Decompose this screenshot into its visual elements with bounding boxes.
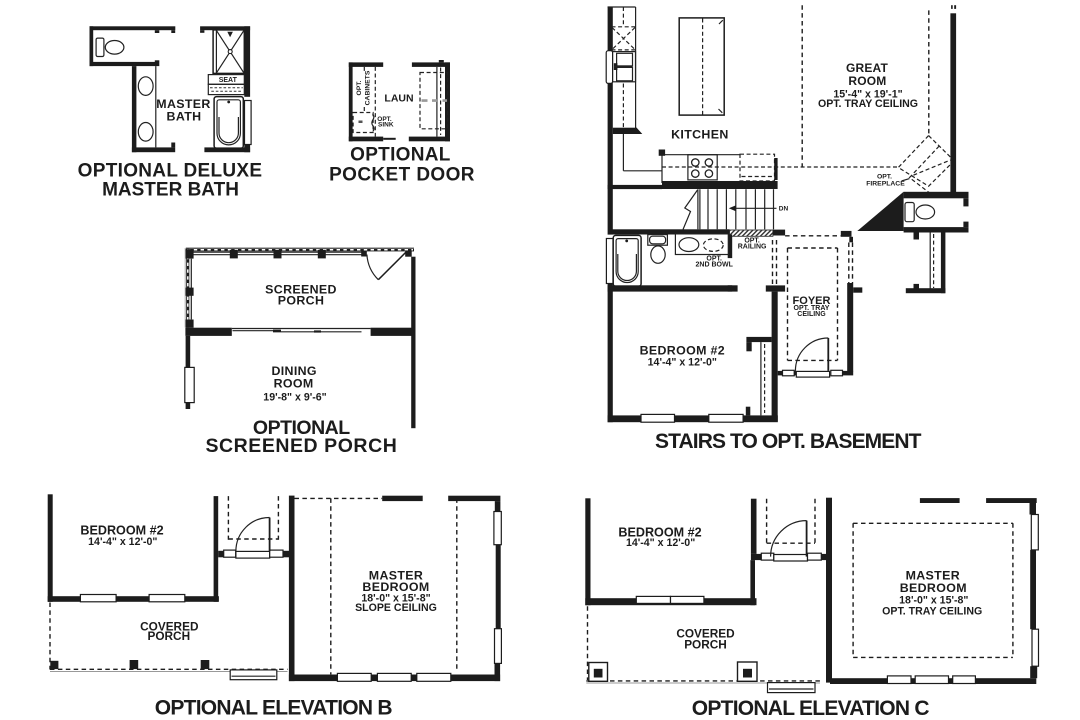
svg-text:RAILING: RAILING	[738, 244, 767, 251]
svg-text:DN: DN	[779, 206, 789, 213]
svg-text:FIREPLACE: FIREPLACE	[866, 181, 905, 188]
svg-text:ROOM: ROOM	[274, 376, 314, 390]
svg-text:OPTIONAL DELUXE: OPTIONAL DELUXE	[78, 160, 263, 181]
svg-text:OPTIONAL ELEVATION B: OPTIONAL ELEVATION B	[155, 697, 393, 720]
svg-text:PORCH: PORCH	[147, 629, 190, 643]
svg-text:SLOPE CEILING: SLOPE CEILING	[355, 602, 437, 614]
svg-text:SCREENED PORCH: SCREENED PORCH	[205, 435, 397, 457]
svg-text:14'-4" x 12'-0": 14'-4" x 12'-0"	[626, 537, 695, 549]
svg-text:2ND BOWL: 2ND BOWL	[696, 262, 734, 269]
svg-text:OPT. TRAY CEILING: OPT. TRAY CEILING	[882, 605, 982, 617]
svg-text:MASTER BATH: MASTER BATH	[102, 180, 239, 201]
svg-text:STAIRS TO OPT. BASEMENT: STAIRS TO OPT. BASEMENT	[655, 430, 922, 453]
svg-text:OPT. TRAY CEILING: OPT. TRAY CEILING	[818, 98, 918, 110]
svg-text:BEDROOM: BEDROOM	[900, 581, 967, 595]
svg-text:14'-4" x 12'-0": 14'-4" x 12'-0"	[648, 357, 717, 369]
svg-text:ROOM: ROOM	[848, 74, 886, 88]
svg-text:POCKET DOOR: POCKET DOOR	[329, 165, 475, 186]
svg-text:OPTIONAL: OPTIONAL	[350, 145, 451, 166]
svg-text:GREAT: GREAT	[846, 61, 889, 75]
svg-text:CABINETS: CABINETS	[365, 70, 372, 105]
svg-text:14'-4" x 12'-0": 14'-4" x 12'-0"	[88, 536, 157, 548]
svg-text:PORCH: PORCH	[684, 638, 727, 652]
svg-text:LAUN: LAUN	[384, 93, 413, 105]
svg-text:PORCH: PORCH	[278, 293, 325, 307]
svg-text:SINK: SINK	[378, 121, 394, 128]
svg-text:BEDROOM #2: BEDROOM #2	[640, 343, 725, 357]
svg-text:OPT.: OPT.	[356, 80, 363, 95]
svg-text:OPTIONAL ELEVATION C: OPTIONAL ELEVATION C	[692, 697, 930, 720]
svg-text:KITCHEN: KITCHEN	[671, 128, 729, 142]
svg-text:19'-8" x 9'-6": 19'-8" x 9'-6"	[263, 392, 326, 404]
svg-text:BATH: BATH	[167, 110, 202, 124]
svg-text:SEAT: SEAT	[219, 77, 238, 84]
svg-text:CEILING: CEILING	[797, 311, 826, 318]
